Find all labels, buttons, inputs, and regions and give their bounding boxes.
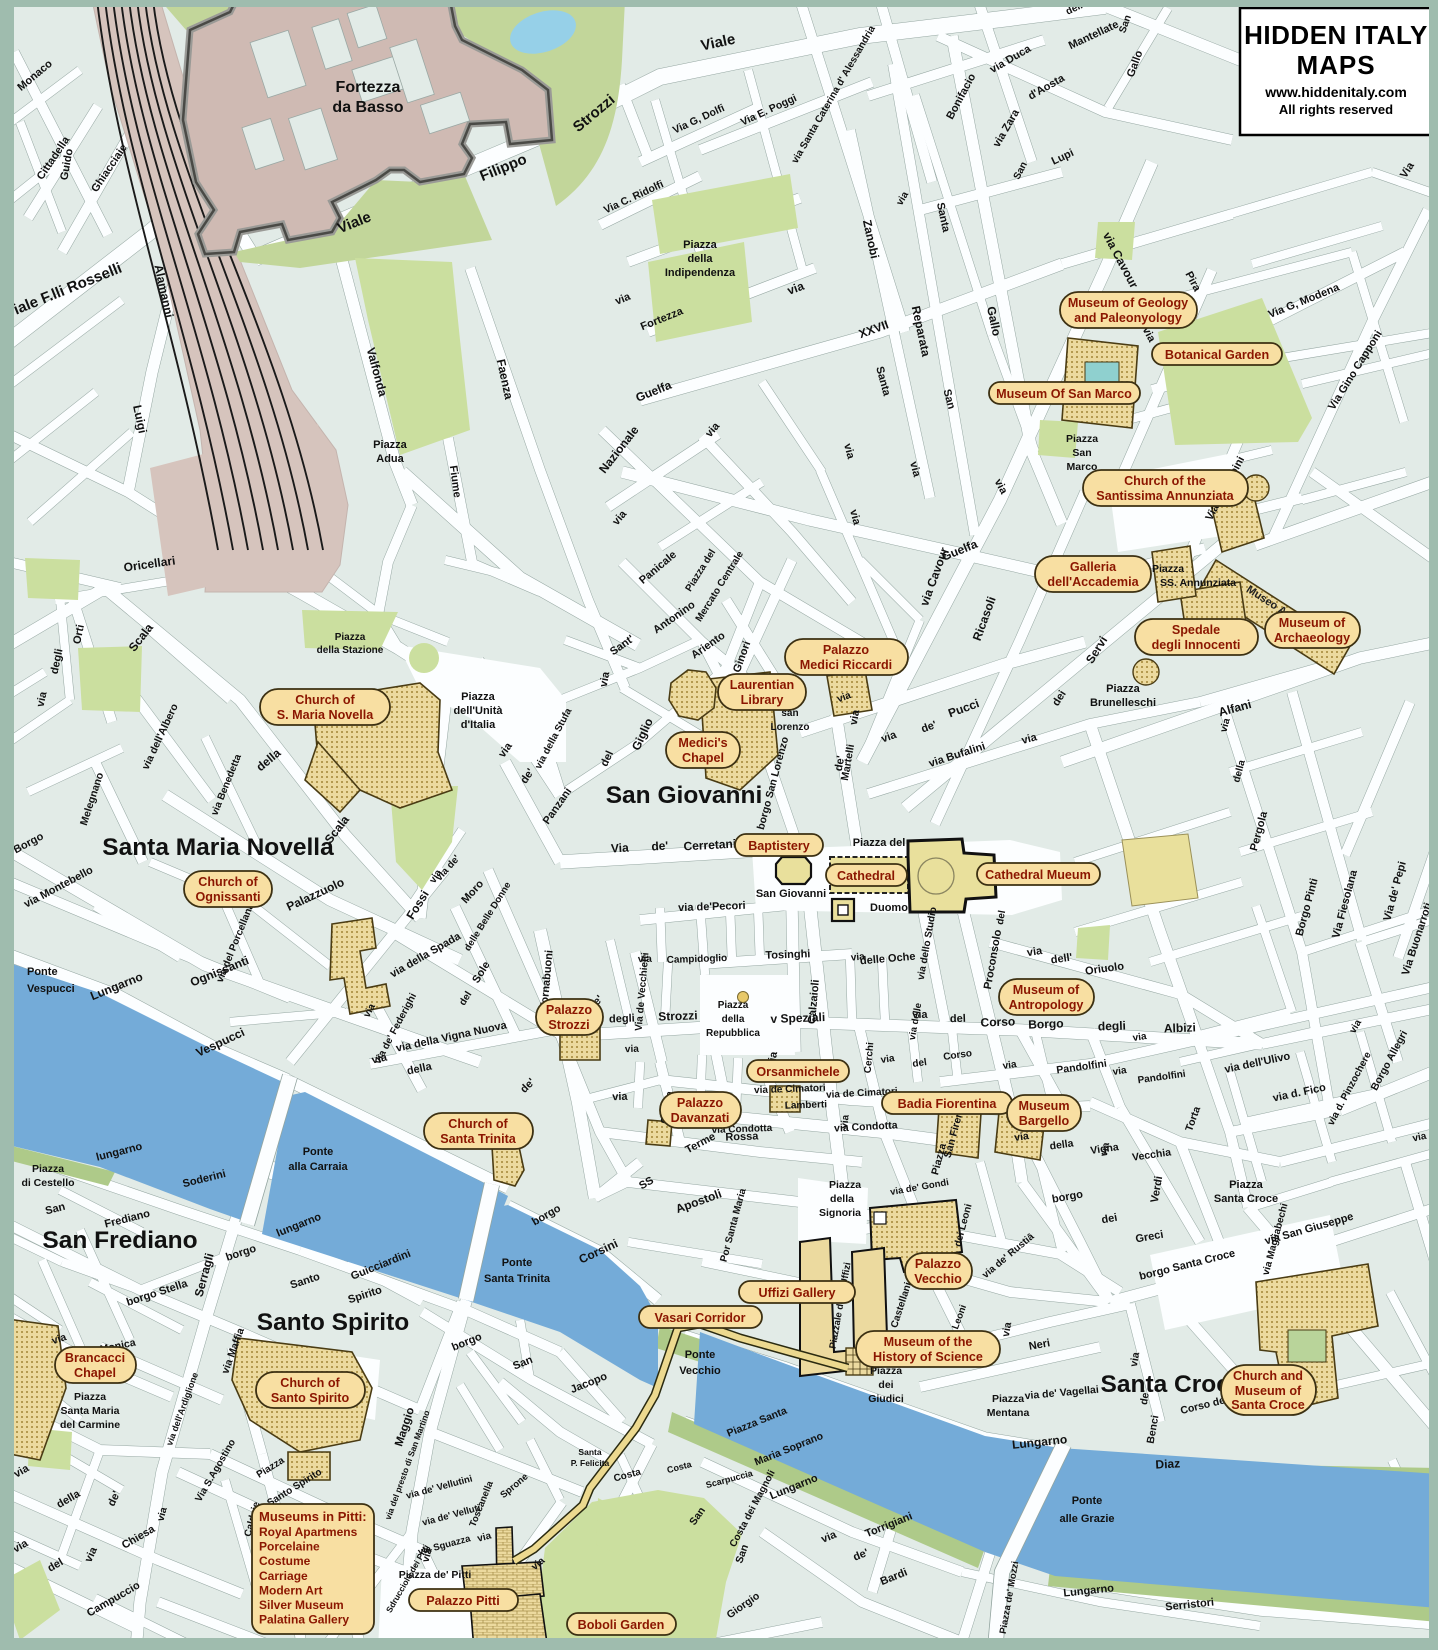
svg-text:Brancacci: Brancacci [65, 1351, 125, 1365]
svg-text:Bargello: Bargello [1019, 1114, 1070, 1128]
svg-text:Duomo: Duomo [870, 902, 908, 914]
svg-text:Palazzo: Palazzo [677, 1096, 724, 1110]
svg-text:Cathedral: Cathedral [837, 869, 895, 883]
svg-text:Laurentian: Laurentian [730, 678, 794, 692]
svg-text:Davanzati: Davanzati [671, 1111, 730, 1125]
svg-text:d'Italia: d'Italia [461, 719, 496, 731]
svg-text:Vasari Corridor: Vasari Corridor [655, 1311, 746, 1325]
svg-text:San Giovanni: San Giovanni [606, 782, 763, 809]
svg-text:Santissima Annunziata: Santissima Annunziata [1096, 489, 1234, 503]
svg-text:Ponte: Ponte [685, 1349, 716, 1361]
svg-text:Santo Spirito: Santo Spirito [257, 1309, 409, 1336]
svg-text:Via: Via [611, 841, 630, 856]
svg-text:Palazzo Pitti: Palazzo Pitti [426, 1594, 499, 1608]
svg-text:Signoria: Signoria [819, 1207, 861, 1219]
svg-text:via: via [839, 1114, 851, 1129]
svg-text:Lorenzo: Lorenzo [771, 722, 810, 733]
svg-text:Piazza: Piazza [829, 1179, 861, 1191]
svg-text:Ponte: Ponte [27, 966, 58, 978]
svg-text:Modern Art: Modern Art [259, 1583, 323, 1597]
svg-text:Boboli Garden: Boboli Garden [578, 1618, 665, 1632]
svg-text:alle Grazie: alle Grazie [1059, 1513, 1114, 1525]
svg-text:Royal Apartmens: Royal Apartmens [259, 1525, 358, 1539]
svg-text:Archaeology: Archaeology [1274, 631, 1350, 645]
svg-text:della: della [830, 1193, 854, 1205]
svg-text:Cerretani: Cerretani [683, 837, 736, 854]
svg-text:SS. Annunziata: SS. Annunziata [1160, 577, 1236, 589]
svg-text:Vecchio: Vecchio [679, 1365, 721, 1377]
svg-text:Library: Library [741, 693, 784, 707]
svg-text:Santo Spirito: Santo Spirito [271, 1391, 350, 1405]
svg-text:Ognissanti: Ognissanti [195, 890, 260, 904]
svg-text:Medici Riccardi: Medici Riccardi [800, 658, 892, 672]
svg-text:dei: dei [878, 1379, 893, 1391]
svg-text:via: via [1128, 1351, 1142, 1368]
svg-text:Orsanmichele: Orsanmichele [756, 1065, 839, 1079]
svg-text:Botanical Garden: Botanical Garden [1165, 348, 1269, 362]
svg-text:Piazza: Piazza [335, 632, 366, 643]
svg-text:Strozzi: Strozzi [548, 1018, 589, 1032]
svg-text:San Frediano: San Frediano [42, 1227, 197, 1254]
svg-text:del: del [912, 1057, 928, 1070]
svg-text:da Basso: da Basso [332, 99, 403, 116]
svg-text:Church and: Church and [1233, 1369, 1303, 1383]
svg-text:Cathedral Mueum: Cathedral Mueum [985, 868, 1091, 882]
svg-text:Chapel: Chapel [682, 751, 724, 765]
svg-text:Piazza: Piazza [461, 691, 496, 703]
svg-text:Museum of: Museum of [1013, 983, 1080, 997]
svg-text:Chapel: Chapel [74, 1366, 116, 1380]
svg-text:de': de' [651, 839, 669, 854]
svg-text:del: del [950, 1013, 966, 1026]
svg-text:Piazza: Piazza [1229, 1179, 1264, 1191]
svg-text:Church of: Church of [448, 1117, 508, 1131]
svg-text:dell'Accademia: dell'Accademia [1047, 575, 1139, 589]
svg-text:via: via [880, 1053, 896, 1066]
svg-text:della: della [722, 1014, 745, 1025]
svg-text:via: via [1026, 945, 1044, 959]
svg-text:Museum of Geology: Museum of Geology [1068, 296, 1188, 310]
svg-text:Palazzo: Palazzo [915, 1257, 962, 1271]
svg-text:Repubblica: Repubblica [706, 1028, 760, 1039]
svg-text:Adua: Adua [376, 453, 404, 465]
svg-text:via: via [1132, 1031, 1148, 1044]
svg-text:Baptistery: Baptistery [748, 839, 810, 853]
svg-text:Church of: Church of [280, 1376, 340, 1390]
svg-text:Museum of: Museum of [1235, 1384, 1302, 1398]
svg-text:Piazza: Piazza [74, 1391, 106, 1403]
svg-text:Church of the: Church of the [1124, 474, 1206, 488]
svg-text:Church of: Church of [198, 875, 258, 889]
svg-text:All rights reserved: All rights reserved [1279, 102, 1393, 117]
svg-text:Antropology: Antropology [1009, 998, 1084, 1012]
svg-text:Lamberti: Lamberti [785, 1099, 828, 1111]
svg-text:via: via [625, 1044, 640, 1055]
svg-text:Spedale: Spedale [1172, 623, 1220, 637]
svg-text:Borgo: Borgo [1028, 1016, 1064, 1031]
svg-text:Ponte: Ponte [1072, 1495, 1103, 1507]
svg-text:via: via [612, 1091, 629, 1104]
svg-text:via: via [1112, 1065, 1128, 1078]
svg-text:History of Science: History of Science [873, 1350, 983, 1364]
svg-text:Indipendenza: Indipendenza [665, 267, 736, 279]
svg-text:Piazza: Piazza [683, 239, 718, 251]
svg-text:Porcelaine: Porcelaine [259, 1540, 320, 1554]
svg-text:Corso: Corso [980, 1014, 1015, 1029]
svg-text:Costume: Costume [259, 1554, 311, 1568]
svg-text:P. Felicita: P. Felicita [571, 1458, 610, 1468]
svg-text:Palatina Gallery: Palatina Gallery [259, 1613, 349, 1627]
svg-text:Mentana: Mentana [987, 1407, 1030, 1419]
svg-text:via: via [1014, 1130, 1030, 1144]
svg-text:Galleria: Galleria [1070, 560, 1117, 574]
svg-text:Piazza: Piazza [1066, 433, 1098, 445]
svg-text:MAPS: MAPS [1296, 50, 1375, 80]
svg-text:Carriage: Carriage [259, 1569, 308, 1583]
svg-text:Church of: Church of [295, 693, 355, 707]
svg-text:Vespucci: Vespucci [27, 983, 75, 995]
svg-text:Museum of: Museum of [1279, 616, 1346, 630]
svg-text:Santa Croce: Santa Croce [1214, 1193, 1278, 1205]
svg-text:Museum: Museum [1018, 1099, 1069, 1113]
svg-text:Silver Museum: Silver Museum [259, 1598, 344, 1612]
svg-text:Vecchio: Vecchio [914, 1272, 962, 1286]
svg-text:della: della [687, 253, 713, 265]
svg-text:alla Carraia: alla Carraia [288, 1161, 348, 1173]
svg-text:degli Innocenti: degli Innocenti [1152, 638, 1241, 652]
svg-text:via: via [1000, 1321, 1014, 1338]
svg-text:Strozzi: Strozzi [658, 1008, 698, 1023]
svg-text:Museum Of San Marco: Museum Of San Marco [996, 387, 1132, 401]
svg-text:Brunelleschi: Brunelleschi [1090, 697, 1156, 709]
svg-text:Tosinghi: Tosinghi [765, 948, 810, 962]
svg-text:Palazzo: Palazzo [823, 643, 870, 657]
svg-text:and Paleonyology: and Paleonyology [1074, 311, 1182, 325]
svg-text:Piazza: Piazza [1152, 563, 1184, 575]
svg-text:Medici's: Medici's [678, 736, 727, 750]
svg-text:Santa Croce: Santa Croce [1231, 1398, 1305, 1412]
svg-text:degli: degli [609, 1013, 635, 1026]
svg-text:de': de' [1138, 1389, 1152, 1406]
svg-text:Fortezza: Fortezza [336, 79, 401, 96]
svg-text:Piazza: Piazza [32, 1163, 64, 1175]
svg-text:HIDDEN ITALY: HIDDEN ITALY [1244, 20, 1428, 50]
svg-text:del Carmine: del Carmine [60, 1419, 120, 1431]
svg-text:Giudici: Giudici [868, 1393, 904, 1405]
svg-text:San Giovanni: San Giovanni [756, 888, 826, 900]
svg-text:di Cestello: di Cestello [21, 1177, 74, 1189]
svg-text:Ponte: Ponte [502, 1257, 533, 1269]
svg-text:Santa: Santa [578, 1447, 601, 1457]
svg-text:Diaz: Diaz [1155, 1456, 1180, 1471]
svg-text:Santa Maria Novella: Santa Maria Novella [102, 834, 334, 861]
svg-text:Piazza: Piazza [718, 1000, 749, 1011]
svg-text:Badia Fiorentina: Badia Fiorentina [898, 1097, 998, 1111]
svg-text:Ponte: Ponte [303, 1146, 334, 1158]
svg-text:dell'Unità: dell'Unità [453, 705, 503, 717]
svg-text:Santa Trinita: Santa Trinita [484, 1273, 551, 1285]
svg-text:degli: degli [1098, 1019, 1126, 1034]
svg-text:Piazza de' Pitti: Piazza de' Pitti [399, 1569, 472, 1581]
svg-text:Museums in Pitti:: Museums in Pitti: [259, 1509, 367, 1524]
svg-text:www.hiddenitaly.com: www.hiddenitaly.com [1264, 84, 1407, 100]
svg-text:Palazzo: Palazzo [546, 1003, 593, 1017]
svg-text:S. Maria Novella: S. Maria Novella [277, 708, 375, 722]
svg-text:Uffizi Gallery: Uffizi Gallery [759, 1286, 836, 1300]
svg-text:Piazza: Piazza [1106, 683, 1141, 695]
svg-text:della Stazione: della Stazione [317, 645, 384, 656]
svg-text:Santa Trinita: Santa Trinita [440, 1132, 517, 1146]
svg-text:Museum of the: Museum of the [884, 1335, 973, 1349]
svg-text:via: via [1002, 1059, 1018, 1072]
svg-text:San: San [1072, 447, 1091, 459]
svg-text:Santa Maria: Santa Maria [61, 1405, 120, 1417]
svg-text:Piazza del: Piazza del [853, 837, 906, 849]
svg-text:via: via [850, 951, 865, 963]
svg-text:Piazza: Piazza [373, 439, 408, 451]
svg-text:Albizi: Albizi [1164, 1020, 1196, 1035]
svg-text:Campidoglio: Campidoglio [666, 953, 727, 966]
svg-text:Piazza: Piazza [992, 1393, 1024, 1405]
svg-text:via de'Pecori: via de'Pecori [678, 900, 746, 914]
